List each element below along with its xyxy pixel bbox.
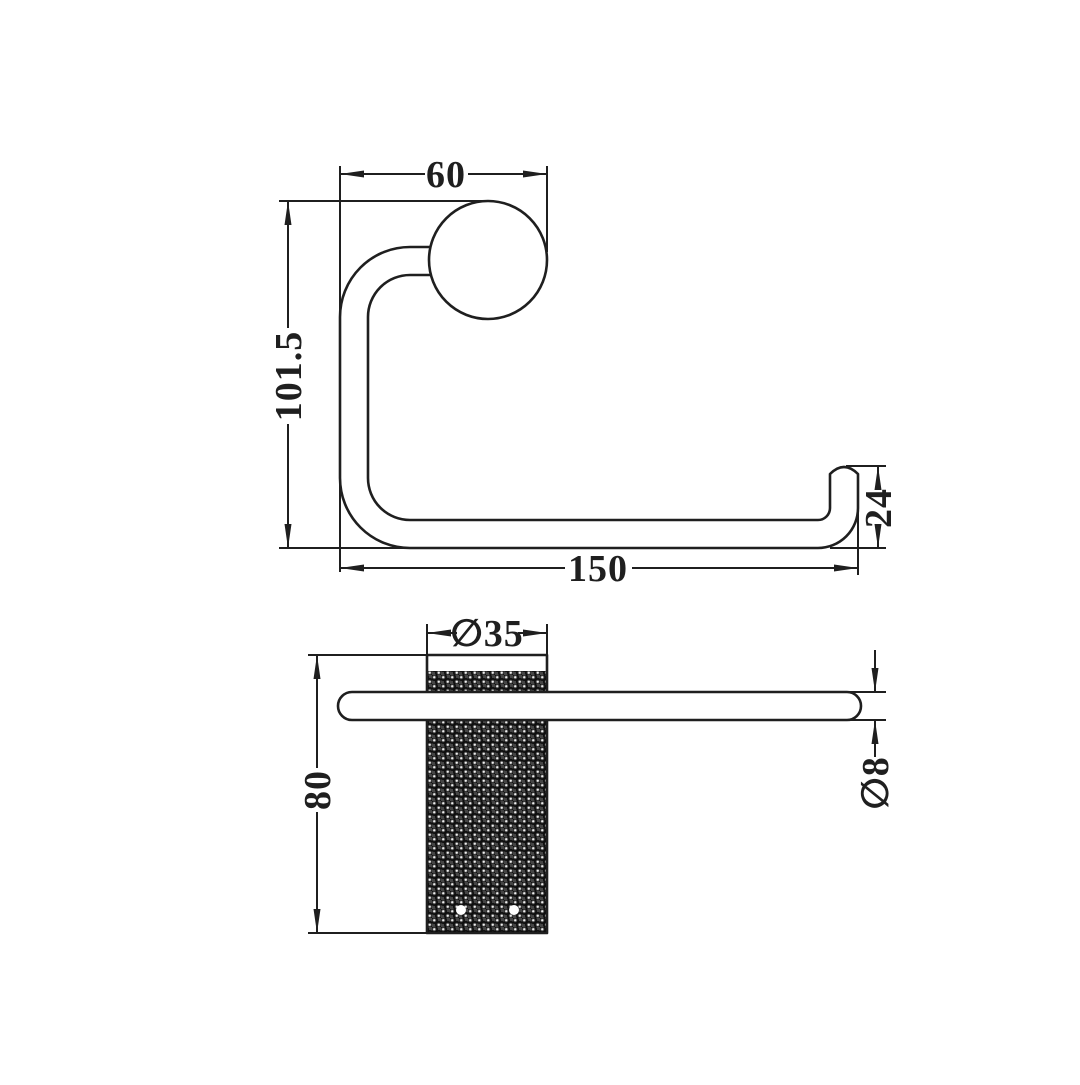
arrowhead-left — [340, 565, 364, 572]
arrowhead-left — [340, 171, 364, 178]
dim-label-height: 101.5 — [268, 331, 310, 422]
arrowhead-down — [872, 668, 879, 692]
arrowhead-bottom — [314, 909, 321, 933]
hook-arm-outline — [340, 247, 858, 548]
screw-hole-left — [456, 905, 466, 915]
mounting-ball-end — [429, 201, 547, 319]
arrowhead-right — [523, 630, 547, 637]
arrowhead-bottom — [285, 524, 292, 548]
arrowhead-up — [872, 720, 879, 744]
holder-bar — [338, 692, 861, 720]
arrowhead-top — [285, 201, 292, 225]
dim-label-bar-diameter: ∅8 — [855, 756, 897, 810]
dim-lip-height: 24 — [830, 466, 900, 548]
technical-drawing: 60 101.5 150 24 — [0, 0, 1080, 1080]
dim-bar-diameter: ∅8 — [850, 650, 897, 810]
dim-post-diameter: ∅35 — [427, 613, 547, 657]
side-view: ∅35 80 ∅8 — [297, 613, 897, 933]
arrowhead-top — [314, 655, 321, 679]
front-view: 60 101.5 150 24 — [268, 154, 900, 590]
screw-hole-right — [509, 905, 519, 915]
dim-label-top-width: 60 — [426, 154, 466, 196]
arrowhead-right — [523, 171, 547, 178]
dim-label-bottom-width: 150 — [568, 548, 628, 590]
dim-label-post-diameter: ∅35 — [450, 613, 524, 655]
arrowhead-right — [834, 565, 858, 572]
dim-label-post-height: 80 — [297, 770, 339, 810]
dim-label-lip-height: 24 — [858, 488, 900, 528]
arrowhead-top — [875, 466, 882, 490]
arrowhead-left — [427, 630, 451, 637]
drawing-sheet: 60 101.5 150 24 — [0, 0, 1080, 1080]
